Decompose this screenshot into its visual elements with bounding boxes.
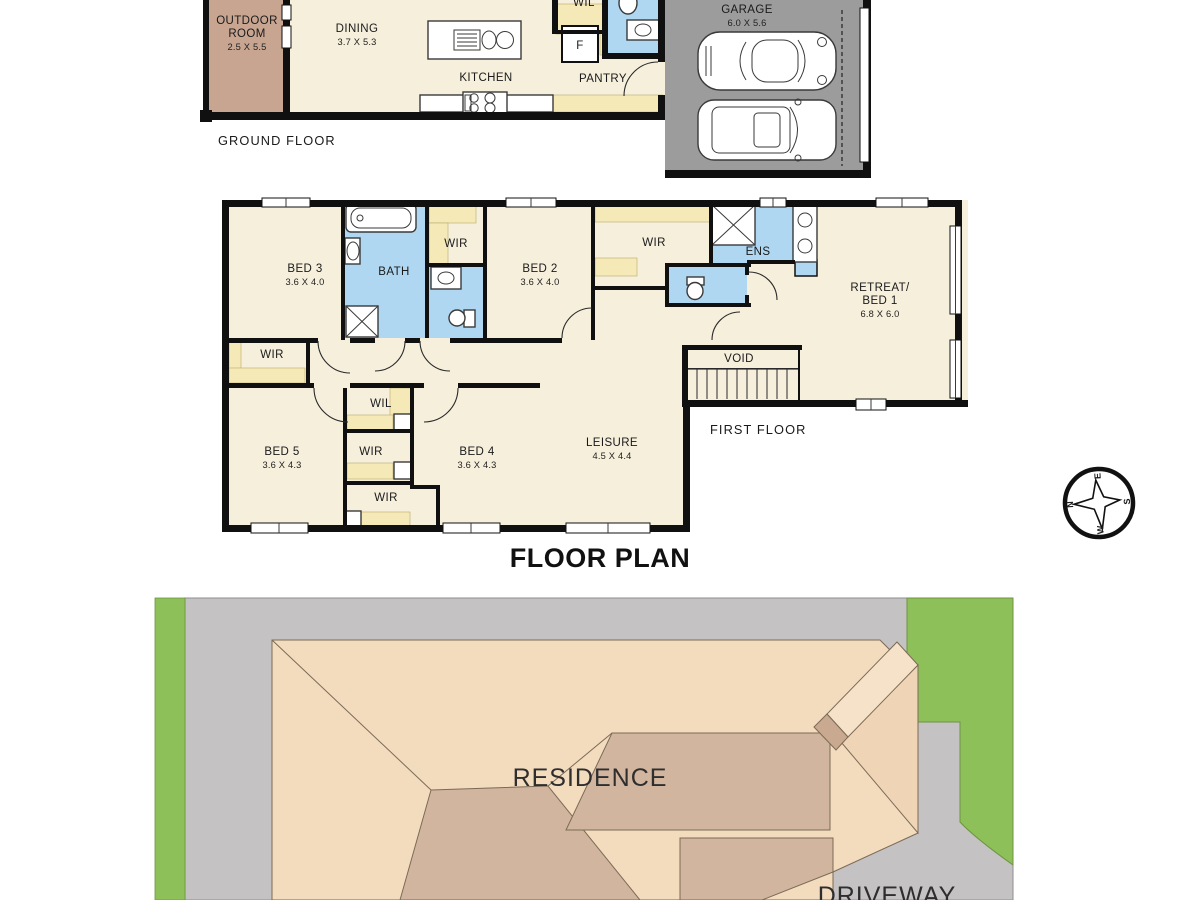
label-ground-floor: GROUND FLOOR <box>218 133 336 148</box>
linen-box <box>394 414 411 431</box>
label-dining-dims: 3.7 X 5.3 <box>337 37 376 47</box>
label-bed4: BED 4 <box>459 446 494 458</box>
window <box>282 5 291 20</box>
garage-door <box>860 8 869 162</box>
label-wir-left: WIR <box>260 349 284 361</box>
page-title: FLOOR PLAN <box>510 543 691 573</box>
label-bed2: BED 2 <box>522 263 557 275</box>
kitchen-bench <box>420 92 553 114</box>
label-pantry: PANTRY <box>579 73 627 85</box>
label-bed3: BED 3 <box>287 263 322 275</box>
linen-box <box>394 462 411 479</box>
label-wir-top: WIR <box>444 238 468 250</box>
label-retreat: RETREAT/ <box>850 282 910 294</box>
label-bath: BATH <box>378 266 409 278</box>
label-wil-gf: WIL <box>573 0 595 9</box>
label-leisure: LEISURE <box>586 437 638 449</box>
floorplan-page: OUTDOOR ROOM 2.5 X 5.5 DINING 3.7 X 5.3 … <box>0 0 1200 900</box>
grass-strip <box>155 598 185 900</box>
compass-s: S <box>1122 498 1132 505</box>
window <box>282 26 291 48</box>
car-icon <box>698 32 836 90</box>
label-bed2-dims: 3.6 X 4.0 <box>520 277 559 287</box>
car-icon <box>698 99 836 161</box>
label-retreat-2: BED 1 <box>862 295 897 307</box>
label-retreat-dims: 6.8 X 6.0 <box>860 309 899 319</box>
compass-icon: N E S W <box>1063 467 1134 538</box>
site-plan: RESIDENCE DRIVEWAY <box>155 598 1013 900</box>
label-ens: ENS <box>746 246 771 258</box>
label-residence: RESIDENCE <box>513 764 668 792</box>
compass-w: W <box>1095 525 1105 535</box>
label-bed5: BED 5 <box>264 446 299 458</box>
ground-floor-plan: OUTDOOR ROOM 2.5 X 5.5 DINING 3.7 X 5.3 … <box>200 0 871 178</box>
label-wir-lower: WIR <box>374 492 398 504</box>
label-fridge: F <box>576 40 583 52</box>
label-outdoor-room-2: ROOM <box>228 28 265 40</box>
label-wir-center: WIR <box>359 446 383 458</box>
label-bed4-dims: 3.6 X 4.3 <box>457 460 496 470</box>
label-kitchen: KITCHEN <box>459 72 512 84</box>
compass-n: N <box>1065 501 1075 508</box>
label-bed3-dims: 3.6 X 4.0 <box>285 277 324 287</box>
label-void: VOID <box>724 353 754 365</box>
label-bed5-dims: 3.6 X 4.3 <box>262 460 301 470</box>
label-dining: DINING <box>336 23 379 35</box>
kitchen-island <box>428 21 521 59</box>
first-floor-plan: BED 3 3.6 X 4.0 BATH WIR BED 2 3.6 X 4.0… <box>222 198 968 533</box>
label-leisure-dims: 4.5 X 4.4 <box>592 451 631 461</box>
label-outdoor-room-dims: 2.5 X 5.5 <box>227 42 266 52</box>
label-wir-mid-top: WIR <box>642 237 666 249</box>
label-first-floor: FIRST FLOOR <box>710 422 806 437</box>
label-driveway: DRIVEWAY <box>818 882 957 900</box>
floorplan-drawing: OUTDOOR ROOM 2.5 X 5.5 DINING 3.7 X 5.3 … <box>0 0 1200 900</box>
label-wil-ff: WIL <box>370 398 392 410</box>
label-garage-dims: 6.0 X 5.6 <box>727 18 766 28</box>
label-garage: GARAGE <box>721 4 773 16</box>
label-outdoor-room: OUTDOOR <box>216 15 278 27</box>
compass-e: E <box>1092 473 1102 480</box>
